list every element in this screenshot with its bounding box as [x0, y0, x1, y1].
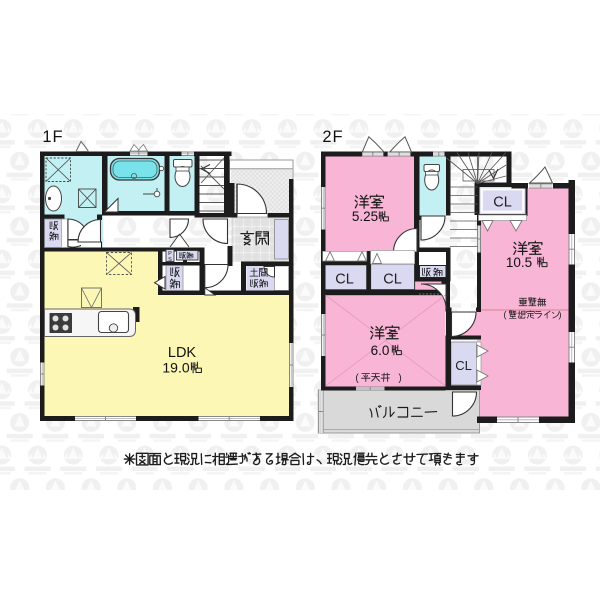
- svg-text:5.25: 5.25: [352, 209, 378, 224]
- svg-text:CL: CL: [493, 195, 512, 211]
- svg-text:CL: CL: [383, 272, 402, 288]
- svg-text:10.5: 10.5: [506, 255, 532, 270]
- svg-text:6.0: 6.0: [371, 343, 390, 358]
- svg-text:CL: CL: [335, 272, 354, 288]
- svg-text:2F: 2F: [322, 128, 343, 146]
- svg-text:1F: 1F: [42, 128, 63, 146]
- svg-text:(: (: [504, 310, 507, 320]
- svg-text:): ): [398, 373, 401, 384]
- svg-text:CL: CL: [455, 358, 472, 373]
- svg-text:S: S: [168, 257, 172, 263]
- svg-text:): ): [559, 310, 562, 320]
- svg-text:19.0: 19.0: [162, 360, 189, 376]
